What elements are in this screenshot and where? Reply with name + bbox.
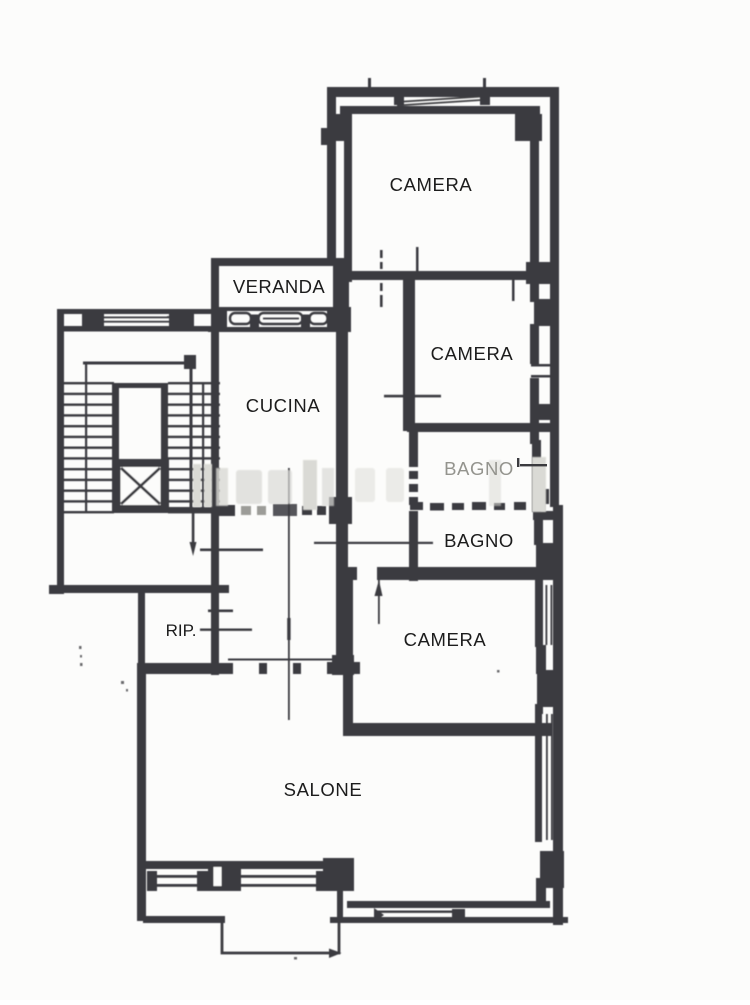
svg-text:CUCINA: CUCINA	[246, 395, 321, 416]
svg-text:CAMERA: CAMERA	[431, 343, 514, 364]
svg-text:CAMERA: CAMERA	[404, 629, 487, 650]
svg-text:VERANDA: VERANDA	[233, 276, 325, 297]
svg-text:SALONE: SALONE	[284, 779, 363, 800]
svg-text:BAGNO: BAGNO	[444, 458, 514, 479]
svg-text:RIP.: RIP.	[166, 621, 197, 640]
svg-text:BAGNO: BAGNO	[444, 530, 514, 551]
svg-text:CAMERA: CAMERA	[390, 174, 473, 195]
